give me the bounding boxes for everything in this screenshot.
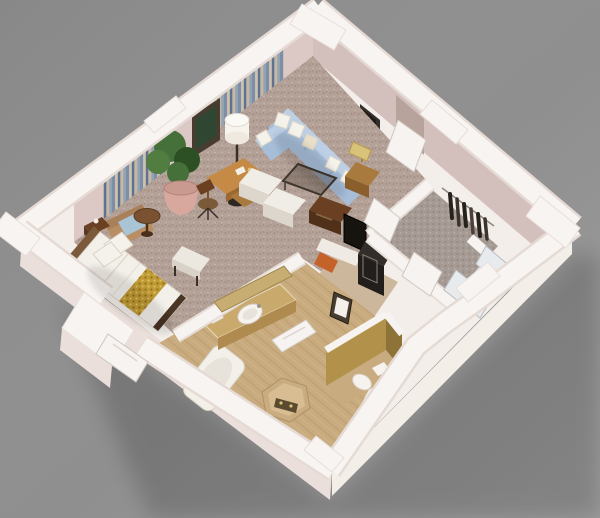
shower-control — [279, 401, 282, 404]
lamp-shade-bottom — [225, 132, 249, 145]
floorplan-canvas — [0, 0, 600, 518]
plant-pot-rim — [164, 181, 198, 195]
sink-faucet — [257, 304, 261, 308]
shower-control — [289, 404, 292, 407]
floorplan-render: 3D dollhouse-view floor plan: an open st… — [0, 0, 600, 518]
round-table-top — [134, 209, 160, 224]
lamp-shade-top — [225, 114, 249, 127]
nightstand-lamp — [94, 219, 99, 224]
plant-foliage — [146, 150, 170, 174]
round-table-foot — [141, 231, 153, 237]
